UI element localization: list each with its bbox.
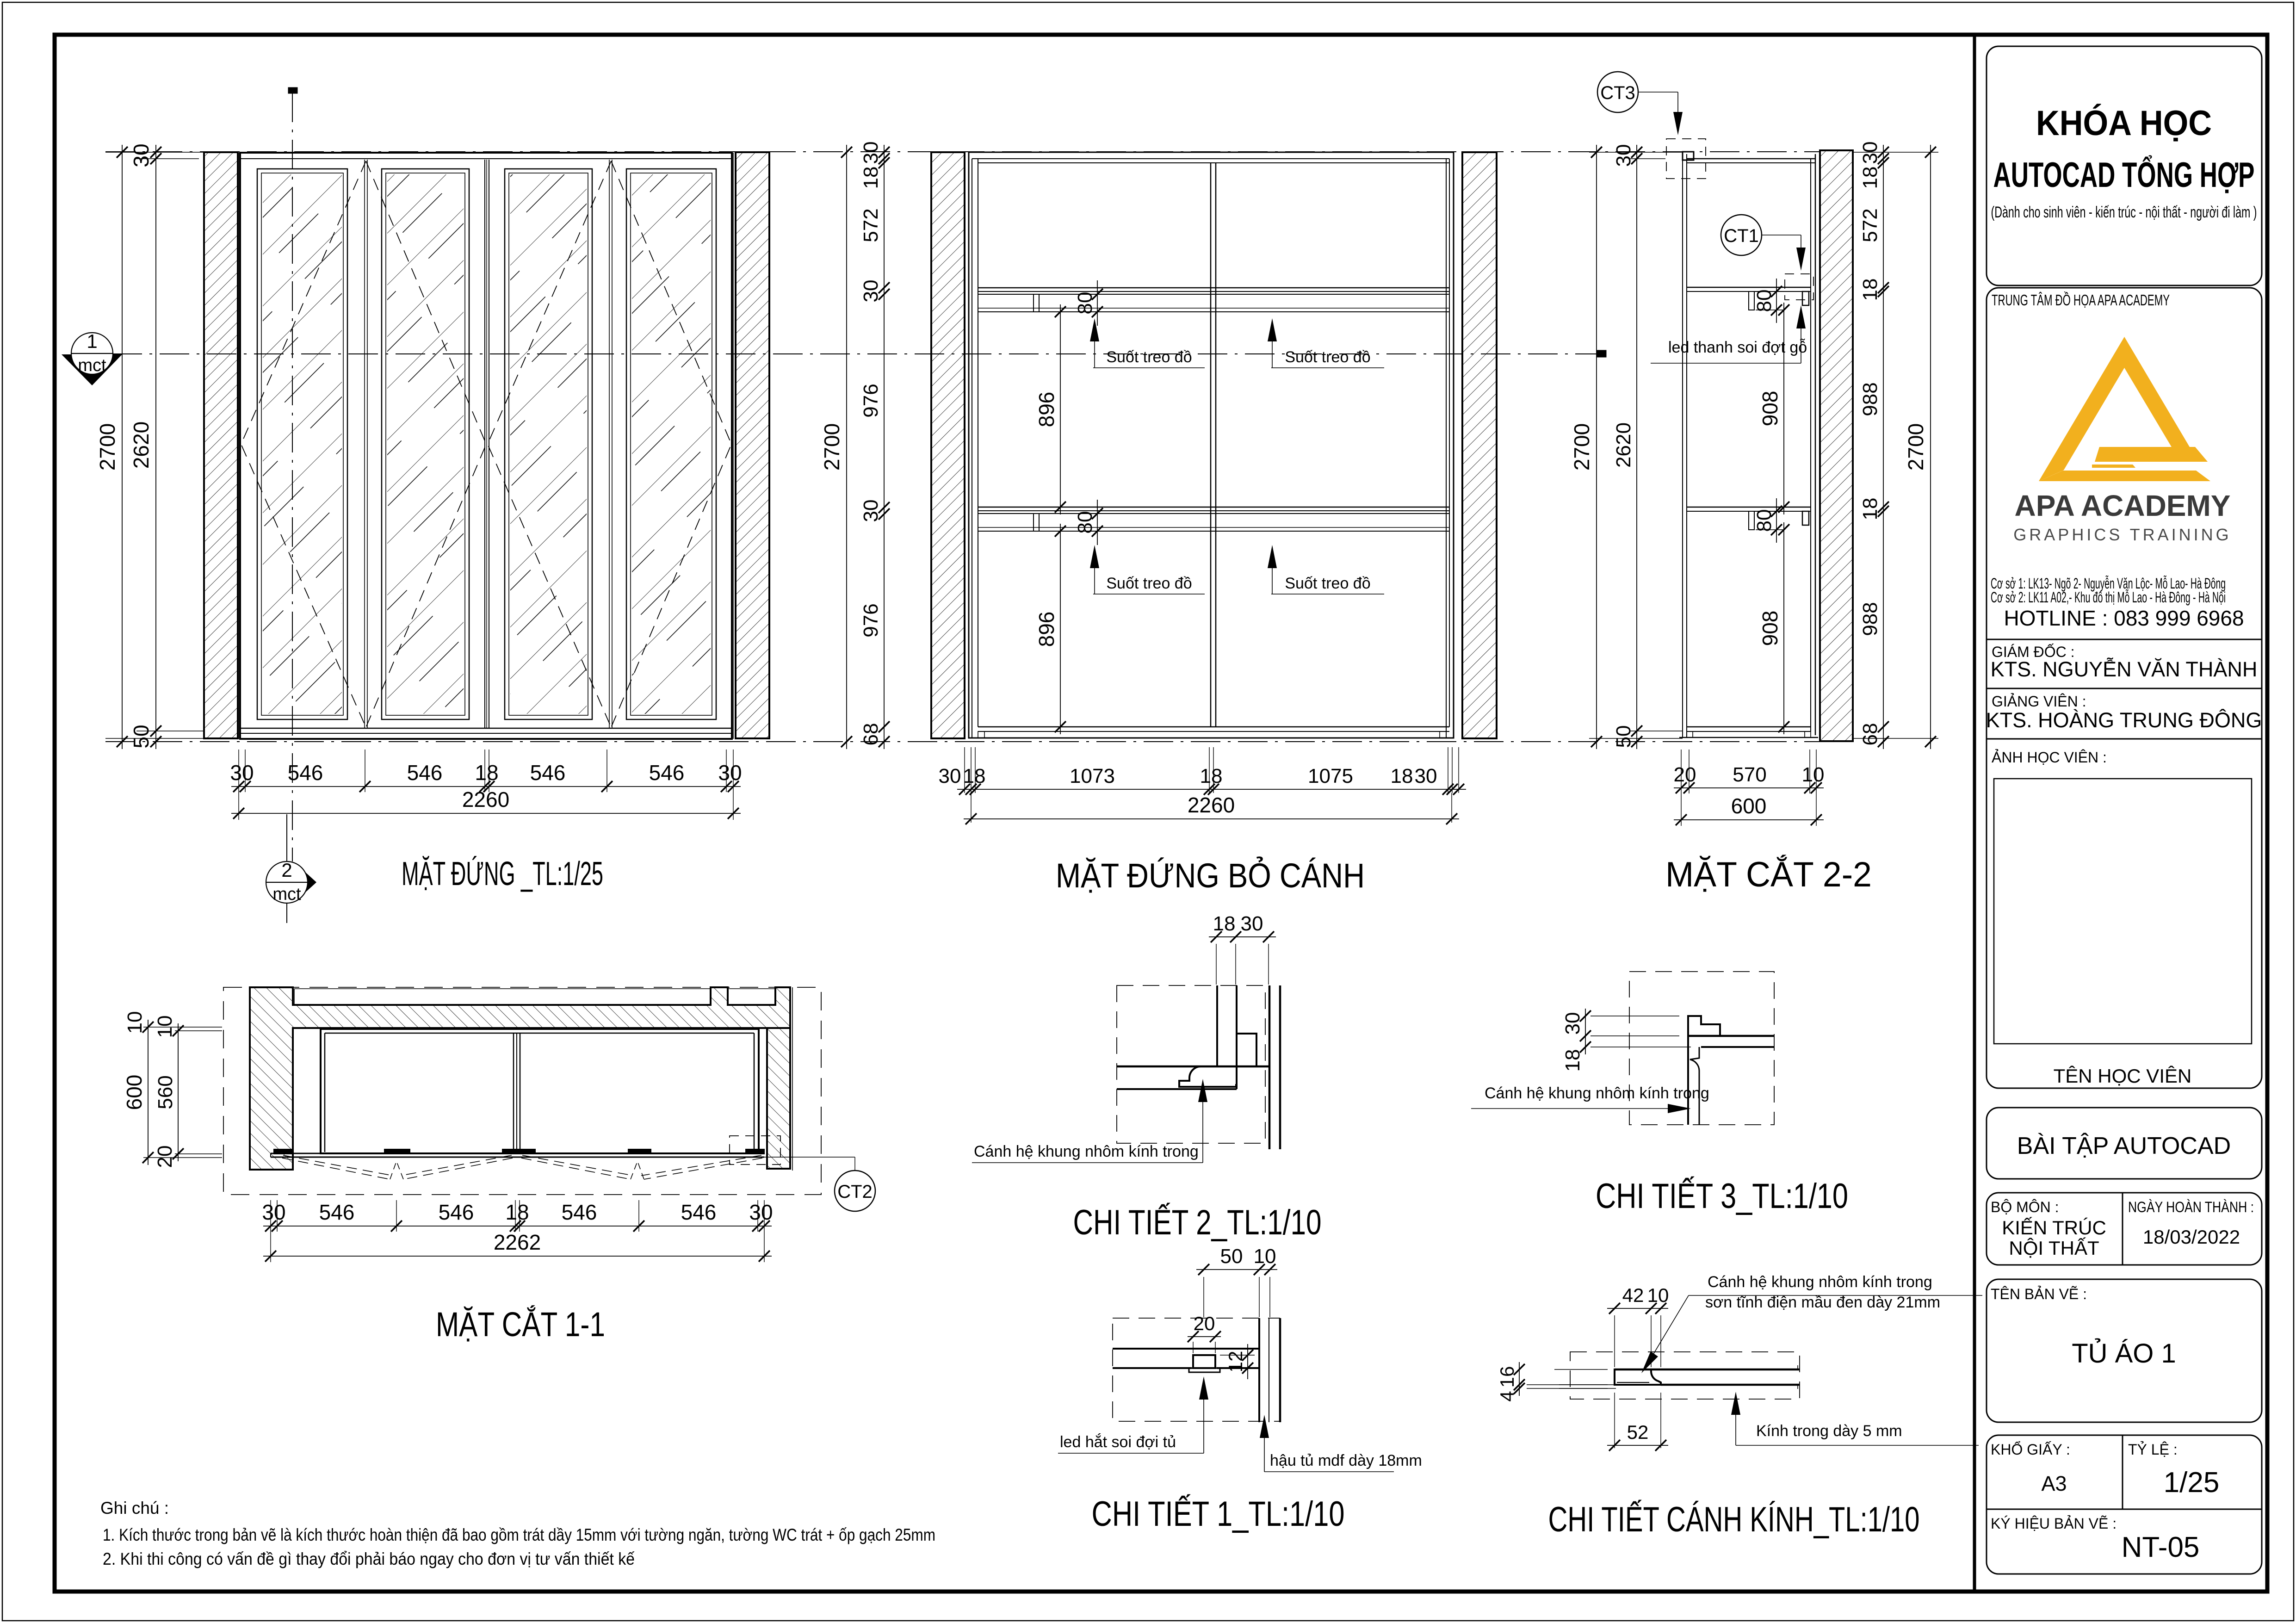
svg-text:Cánh hệ khung nhôm kính trong: Cánh hệ khung nhôm kính trong xyxy=(1485,1084,1709,1102)
svg-text:CT2: CT2 xyxy=(837,1182,873,1202)
svg-text:Suốt treo đồ: Suốt treo đồ xyxy=(1106,348,1192,366)
svg-text:CHI TIẾT 1_TL:1/10: CHI TIẾT 1_TL:1/10 xyxy=(1092,1494,1345,1534)
svg-text:30: 30 xyxy=(1241,912,1263,935)
svg-text:546: 546 xyxy=(562,1200,597,1224)
svg-text:20: 20 xyxy=(1674,763,1696,786)
svg-text:KTS. NGUYỄN VĂN THÀNH: KTS. NGUYỄN VĂN THÀNH xyxy=(1991,657,2258,681)
svg-text:2700: 2700 xyxy=(1904,423,1928,471)
svg-text:NỘI THẤT: NỘI THẤT xyxy=(2009,1237,2099,1259)
svg-text:30: 30 xyxy=(129,143,153,167)
svg-text:CHI TIẾT CÁNH KÍNH_TL:1/10: CHI TIẾT CÁNH KÍNH_TL:1/10 xyxy=(1548,1500,1920,1539)
svg-text:ẢNH HỌC VIÊN :: ẢNH HỌC VIÊN : xyxy=(1992,749,2107,766)
svg-text:1: 1 xyxy=(87,330,97,352)
svg-text:18: 18 xyxy=(1391,765,1413,787)
svg-text:CT1: CT1 xyxy=(1724,226,1759,246)
svg-text:BÀI TẬP AUTOCAD: BÀI TẬP AUTOCAD xyxy=(2017,1133,2231,1159)
svg-text:MẶT ĐỨNG BỎ CÁNH: MẶT ĐỨNG BỎ CÁNH xyxy=(1056,856,1365,895)
svg-text:546: 546 xyxy=(407,761,443,785)
svg-text:led hắt soi đợi tủ: led hắt soi đợi tủ xyxy=(1060,1433,1176,1451)
svg-text:30: 30 xyxy=(860,500,882,522)
svg-text:30: 30 xyxy=(1612,144,1635,167)
svg-text:4: 4 xyxy=(1496,1391,1518,1401)
svg-text:52: 52 xyxy=(1627,1421,1649,1443)
svg-text:18: 18 xyxy=(1213,912,1236,935)
svg-text:A3: A3 xyxy=(2041,1472,2067,1495)
svg-text:42: 42 xyxy=(1622,1284,1644,1306)
svg-text:GRAPHICS TRAINING: GRAPHICS TRAINING xyxy=(2013,525,2231,544)
svg-text:20: 20 xyxy=(154,1146,176,1168)
svg-text:572: 572 xyxy=(860,208,882,242)
svg-text:30: 30 xyxy=(1561,1012,1584,1035)
svg-text:TÊN HỌC VIÊN: TÊN HỌC VIÊN xyxy=(2054,1065,2192,1087)
svg-text:560: 560 xyxy=(154,1075,177,1109)
svg-text:TRUNG TÂM ĐỒ HỌA APA ACADEMY: TRUNG TÂM ĐỒ HỌA APA ACADEMY xyxy=(1992,291,2170,309)
svg-text:2260: 2260 xyxy=(1188,793,1235,817)
svg-text:1. Kích thước trong bản vẽ là: 1. Kích thước trong bản vẽ là kích thước… xyxy=(103,1525,935,1544)
svg-text:Suốt treo đồ: Suốt treo đồ xyxy=(1285,575,1370,592)
svg-text:TÊN BẢN VẼ :: TÊN BẢN VẼ : xyxy=(1991,1286,2087,1302)
svg-text:2. Khi thi công có vấn đề gì t: 2. Khi thi công có vấn đề gì thay đổi ph… xyxy=(103,1549,635,1568)
svg-text:AUTOCAD TỔNG HỢP: AUTOCAD TỔNG HỢP xyxy=(1993,155,2255,195)
svg-text:2: 2 xyxy=(281,859,292,881)
svg-text:2700: 2700 xyxy=(95,423,119,471)
svg-text:MẶT ĐỨNG _TL:1/25: MẶT ĐỨNG _TL:1/25 xyxy=(402,855,603,892)
svg-text:18: 18 xyxy=(860,167,882,189)
svg-text:10: 10 xyxy=(1647,1284,1669,1306)
svg-text:BỘ MÔN :: BỘ MÔN : xyxy=(1991,1199,2059,1215)
svg-text:2700: 2700 xyxy=(1570,423,1594,471)
svg-text:1075: 1075 xyxy=(1308,765,1353,787)
svg-text:546: 546 xyxy=(649,761,685,785)
svg-text:2262: 2262 xyxy=(494,1230,541,1254)
svg-text:976: 976 xyxy=(860,384,882,417)
svg-text:546: 546 xyxy=(319,1200,355,1224)
svg-text:Kính trong dày 5 mm: Kính trong dày 5 mm xyxy=(1756,1422,1902,1440)
svg-text:546: 546 xyxy=(288,761,323,785)
svg-text:18: 18 xyxy=(1859,167,1881,189)
svg-text:TỦ ÁO 1: TỦ ÁO 1 xyxy=(2072,1338,2176,1369)
svg-text:30: 30 xyxy=(749,1200,773,1224)
svg-text:68: 68 xyxy=(860,723,882,746)
svg-text:Ghi chú :: Ghi chú : xyxy=(100,1499,169,1518)
svg-text:80: 80 xyxy=(1074,292,1096,315)
svg-text:68: 68 xyxy=(1859,723,1881,746)
svg-text:50: 50 xyxy=(129,725,153,748)
svg-text:led thanh soi đợt gỗ: led thanh soi đợt gỗ xyxy=(1668,339,1807,356)
svg-text:Suốt treo đồ: Suốt treo đồ xyxy=(1106,575,1192,592)
svg-text:TỶ LỆ :: TỶ LỆ : xyxy=(2128,1441,2178,1458)
svg-text:10: 10 xyxy=(1254,1245,1276,1268)
svg-text:30: 30 xyxy=(1859,142,1881,164)
svg-text:30: 30 xyxy=(718,761,742,785)
svg-text:18: 18 xyxy=(1200,765,1223,787)
svg-text:30: 30 xyxy=(1415,765,1437,787)
svg-text:2260: 2260 xyxy=(462,787,509,811)
svg-text:20: 20 xyxy=(1194,1313,1215,1334)
svg-text:APA ACADEMY: APA ACADEMY xyxy=(2015,489,2231,522)
svg-text:NGÀY HOÀN THÀNH :: NGÀY HOÀN THÀNH : xyxy=(2128,1199,2254,1215)
svg-text:80: 80 xyxy=(1074,511,1096,534)
svg-text:18/03/2022: 18/03/2022 xyxy=(2143,1226,2240,1248)
svg-text:18: 18 xyxy=(475,761,498,785)
svg-text:30: 30 xyxy=(860,280,882,303)
svg-text:10: 10 xyxy=(124,1011,146,1034)
svg-text:Cánh hệ khung nhôm kính trong: Cánh hệ khung nhôm kính trong xyxy=(974,1143,1199,1160)
svg-text:572: 572 xyxy=(1859,208,1881,242)
svg-text:hậu tủ mdf dày 18mm: hậu tủ mdf dày 18mm xyxy=(1270,1452,1422,1469)
svg-text:546: 546 xyxy=(439,1200,474,1224)
svg-text:896: 896 xyxy=(1034,392,1058,427)
svg-text:10: 10 xyxy=(154,1016,176,1038)
svg-text:570: 570 xyxy=(1733,763,1766,786)
svg-text:18: 18 xyxy=(963,765,986,787)
svg-text:2620: 2620 xyxy=(1612,422,1635,468)
svg-text:1/25: 1/25 xyxy=(2164,1467,2220,1499)
svg-text:50: 50 xyxy=(1220,1245,1243,1268)
svg-text:2620: 2620 xyxy=(129,421,153,469)
svg-text:896: 896 xyxy=(1034,612,1058,647)
svg-text:CT3: CT3 xyxy=(1600,83,1635,103)
svg-text:2700: 2700 xyxy=(820,423,844,471)
svg-text:sơn tĩnh điện mầu đen dày 21mm: sơn tĩnh điện mầu đen dày 21mm xyxy=(1705,1294,1940,1311)
svg-text:600: 600 xyxy=(1731,794,1767,818)
svg-text:NT-05: NT-05 xyxy=(2122,1531,2200,1563)
svg-text:30: 30 xyxy=(939,765,961,787)
svg-text:CHI TIẾT 3_TL:1/10: CHI TIẾT 3_TL:1/10 xyxy=(1596,1177,1848,1216)
svg-text:80: 80 xyxy=(1753,509,1776,532)
svg-text:mct: mct xyxy=(272,885,301,904)
svg-text:976: 976 xyxy=(860,603,882,637)
svg-text:KTS. HOÀNG TRUNG ĐÔNG: KTS. HOÀNG TRUNG ĐÔNG xyxy=(1986,708,2262,732)
svg-text:Cánh hệ khung nhôm kính trong: Cánh hệ khung nhôm kính trong xyxy=(1708,1273,1932,1291)
svg-text:18: 18 xyxy=(1859,498,1881,520)
svg-text:MẶT CẮT 2-2: MẶT CẮT 2-2 xyxy=(1665,855,1872,894)
svg-text:30: 30 xyxy=(860,142,882,164)
svg-text:KHÓA HỌC: KHÓA HỌC xyxy=(2036,104,2212,143)
svg-text:30: 30 xyxy=(230,761,254,785)
svg-text:KHỔ GIẤY :: KHỔ GIẤY : xyxy=(1991,1441,2070,1458)
svg-text:546: 546 xyxy=(530,761,566,785)
svg-text:50: 50 xyxy=(1612,725,1635,748)
svg-text:30: 30 xyxy=(262,1200,285,1224)
svg-text:GIẢNG VIÊN :: GIẢNG VIÊN : xyxy=(1992,693,2086,710)
svg-text:908: 908 xyxy=(1758,391,1782,427)
svg-text:988: 988 xyxy=(1859,382,1881,416)
svg-text:CHI TIẾT 2_TL:1/10: CHI TIẾT 2_TL:1/10 xyxy=(1073,1203,1322,1242)
svg-text:(Dành cho sinh viên - kiến tr: (Dành cho sinh viên - kiến trúc - nội th… xyxy=(1991,204,2257,221)
svg-text:80: 80 xyxy=(1753,290,1776,312)
svg-text:Suốt treo đồ: Suốt treo đồ xyxy=(1285,348,1370,366)
svg-text:KIẾN TRÚC: KIẾN TRÚC xyxy=(2002,1217,2106,1239)
svg-text:18: 18 xyxy=(1859,279,1881,301)
svg-text:18: 18 xyxy=(505,1200,529,1224)
svg-text:10: 10 xyxy=(1802,763,1825,786)
svg-text:16: 16 xyxy=(1496,1366,1518,1388)
svg-text:18: 18 xyxy=(1561,1049,1584,1072)
svg-text:600: 600 xyxy=(122,1075,146,1110)
svg-text:1073: 1073 xyxy=(1070,765,1115,787)
svg-text:Cơ sở 2: LK11 A02,- Khu đô thị: Cơ sở 2: LK11 A02,- Khu đô thị Mỗ Lao - … xyxy=(1991,589,2226,606)
svg-text:KÝ HIỆU BẢN VẼ :: KÝ HIỆU BẢN VẼ : xyxy=(1991,1515,2117,1532)
svg-text:908: 908 xyxy=(1758,611,1782,646)
svg-text:988: 988 xyxy=(1859,602,1881,636)
svg-text:546: 546 xyxy=(681,1200,717,1224)
svg-text:12: 12 xyxy=(1225,1351,1246,1373)
svg-text:HOTLINE : 083 999 6968: HOTLINE : 083 999 6968 xyxy=(2004,606,2244,630)
svg-text:MẶT CẮT 1-1: MẶT CẮT 1-1 xyxy=(436,1305,605,1344)
svg-text:mct: mct xyxy=(78,356,106,375)
